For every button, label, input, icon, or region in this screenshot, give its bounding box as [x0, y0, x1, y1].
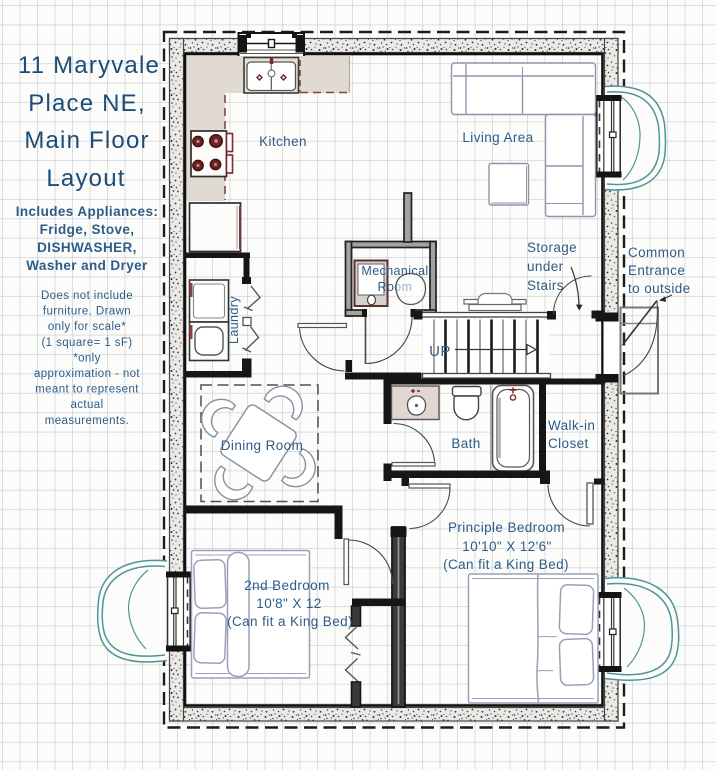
svg-text:10'10" X 12'6": 10'10" X 12'6"	[462, 539, 551, 554]
svg-text:actual: actual	[70, 399, 103, 411]
svg-text:to outside: to outside	[628, 281, 691, 296]
svg-text:(1 square= 1 sF): (1 square= 1 sF)	[41, 337, 132, 349]
svg-text:UP: UP	[429, 343, 451, 360]
svg-text:Kitchen: Kitchen	[259, 134, 307, 149]
svg-text:Living Area: Living Area	[462, 130, 533, 145]
svg-text:Bath: Bath	[451, 436, 480, 451]
svg-text:Does not include: Does not include	[41, 290, 133, 302]
svg-text:Main Floor: Main Floor	[24, 127, 149, 154]
svg-text:only for scale*: only for scale*	[48, 321, 126, 333]
svg-text:Common: Common	[628, 245, 685, 260]
svg-text:Walk-in: Walk-in	[548, 418, 595, 433]
svg-text:Washer and Dryer: Washer and Dryer	[26, 258, 148, 273]
svg-text:Laundry: Laundry	[227, 296, 241, 344]
svg-text:Stairs: Stairs	[527, 278, 564, 293]
svg-text:(Can fit a King Bed): (Can fit a King Bed)	[227, 614, 353, 629]
svg-text:approximation - not: approximation - not	[34, 368, 140, 380]
svg-text:DISHWASHER,: DISHWASHER,	[37, 240, 137, 255]
svg-text:meant to represent: meant to represent	[35, 384, 139, 396]
svg-text:Place NE,: Place NE,	[28, 90, 146, 117]
svg-text:2nd Bedroom: 2nd Bedroom	[244, 578, 329, 593]
svg-text:Closet: Closet	[548, 436, 589, 451]
svg-text:Fridge, Stove,: Fridge, Stove,	[40, 222, 135, 237]
svg-text:11 Maryvale: 11 Maryvale	[18, 52, 160, 79]
svg-text:10'8" X 12: 10'8" X 12	[256, 596, 321, 611]
svg-text:Entrance: Entrance	[628, 263, 685, 278]
svg-text:Layout: Layout	[46, 165, 125, 192]
svg-text:*only: *only	[73, 352, 101, 364]
svg-text:Dining Room: Dining Room	[221, 438, 303, 453]
svg-text:(Can fit a King Bed): (Can fit a King Bed)	[443, 557, 569, 572]
svg-text:Storage: Storage	[527, 240, 577, 255]
svg-text:under: under	[527, 259, 564, 274]
svg-text:furniture. Drawn: furniture. Drawn	[43, 306, 131, 318]
svg-text:Includes Appliances:: Includes Appliances:	[16, 204, 159, 219]
svg-text:measurements.: measurements.	[45, 415, 129, 427]
svg-text:Principle Bedroom: Principle Bedroom	[448, 520, 565, 535]
